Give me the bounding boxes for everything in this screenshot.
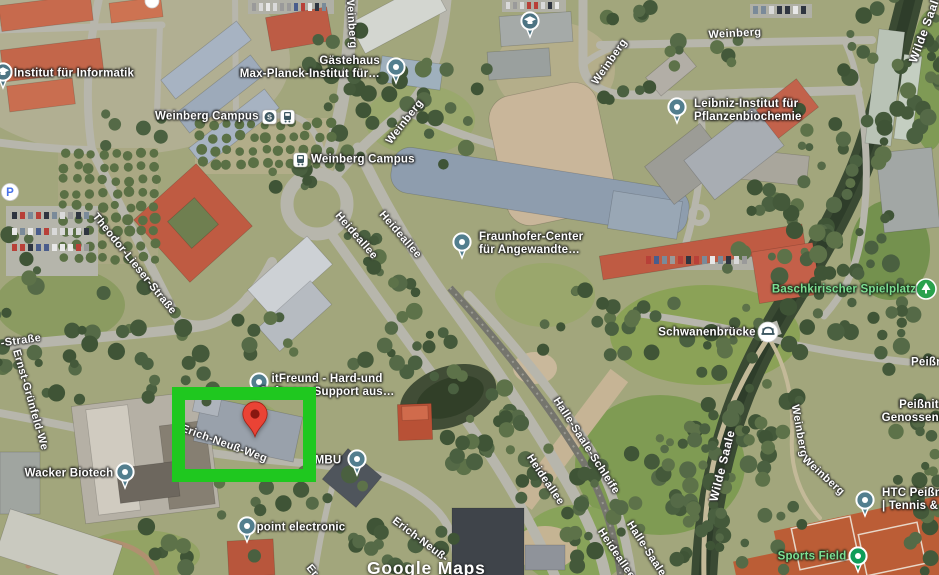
location-pin[interactable] bbox=[242, 401, 268, 443]
poi-wacker-biotech[interactable]: Wacker Biotech bbox=[25, 467, 114, 480]
spielplatz-park-icon[interactable] bbox=[915, 278, 937, 305]
parking-icon[interactable]: P bbox=[0, 181, 21, 208]
poi-peissnitz-genossenschaft[interactable]: PeißnitzhGenossensc bbox=[882, 399, 939, 425]
pin-hole bbox=[250, 409, 259, 418]
map-canvas[interactable]: P WeinbergWeinbergWeinbergWeinbergWeinbe… bbox=[0, 0, 939, 575]
sports-field-marker[interactable] bbox=[847, 546, 869, 575]
pin-body bbox=[243, 402, 267, 437]
htc-marker[interactable] bbox=[854, 490, 876, 523]
campus-education-marker[interactable] bbox=[519, 11, 541, 44]
gaestehaus-marker[interactable] bbox=[385, 57, 407, 90]
poi-peissn-cut[interactable]: Peißn bbox=[911, 356, 939, 369]
tram-badge-icon[interactable] bbox=[293, 153, 308, 168]
leibniz-marker[interactable] bbox=[666, 97, 688, 130]
poi-fraunhofer-center[interactable]: Fraunhofer-Centerfür Angewandte… bbox=[479, 231, 583, 257]
top-edge-partial-marker bbox=[141, 0, 163, 17]
institut-informatik-marker[interactable] bbox=[0, 62, 14, 95]
transit-weinberg-campus-2[interactable]: Weinberg Campus bbox=[293, 153, 415, 168]
sbahn-badge-icon[interactable]: S bbox=[262, 110, 277, 125]
svg-text:S: S bbox=[267, 113, 272, 122]
poi-leibniz-institut[interactable]: Leibniz-Institut fürPflanzenbiochemie bbox=[694, 98, 802, 124]
poi-point-electronic[interactable]: point electronic bbox=[257, 521, 346, 534]
svg-text:P: P bbox=[6, 187, 14, 199]
schwanenbruecke-bridge-icon[interactable] bbox=[757, 321, 779, 348]
tram-badge-icon[interactable] bbox=[280, 110, 295, 125]
point-electronic-marker[interactable] bbox=[236, 516, 258, 549]
fraunhofer-marker[interactable] bbox=[451, 232, 473, 265]
park-sports-field[interactable]: Sports Field bbox=[778, 550, 847, 563]
poi-mbu[interactable]: MBU bbox=[315, 454, 342, 467]
mbu-marker[interactable] bbox=[346, 449, 368, 482]
park-baschkirischer-spielplatz[interactable]: Baschkirischer Spielplatz bbox=[772, 283, 916, 296]
poi-htc-peissnitz[interactable]: HTC Peißnitz| Tennis & P bbox=[882, 487, 939, 513]
poi-schwanenbruecke[interactable]: Schwanenbrücke bbox=[658, 326, 755, 339]
google-maps-watermark[interactable]: Google Maps bbox=[367, 558, 486, 575]
wacker-biotech-marker[interactable] bbox=[114, 462, 136, 495]
poi-gaestehaus-max-planck[interactable]: GästehausMax-Planck-Institut für… bbox=[240, 55, 380, 81]
poi-institut-informatik[interactable]: Institut für Informatik bbox=[14, 67, 134, 80]
transit-weinberg-campus-1[interactable]: Weinberg CampusS bbox=[155, 110, 295, 125]
